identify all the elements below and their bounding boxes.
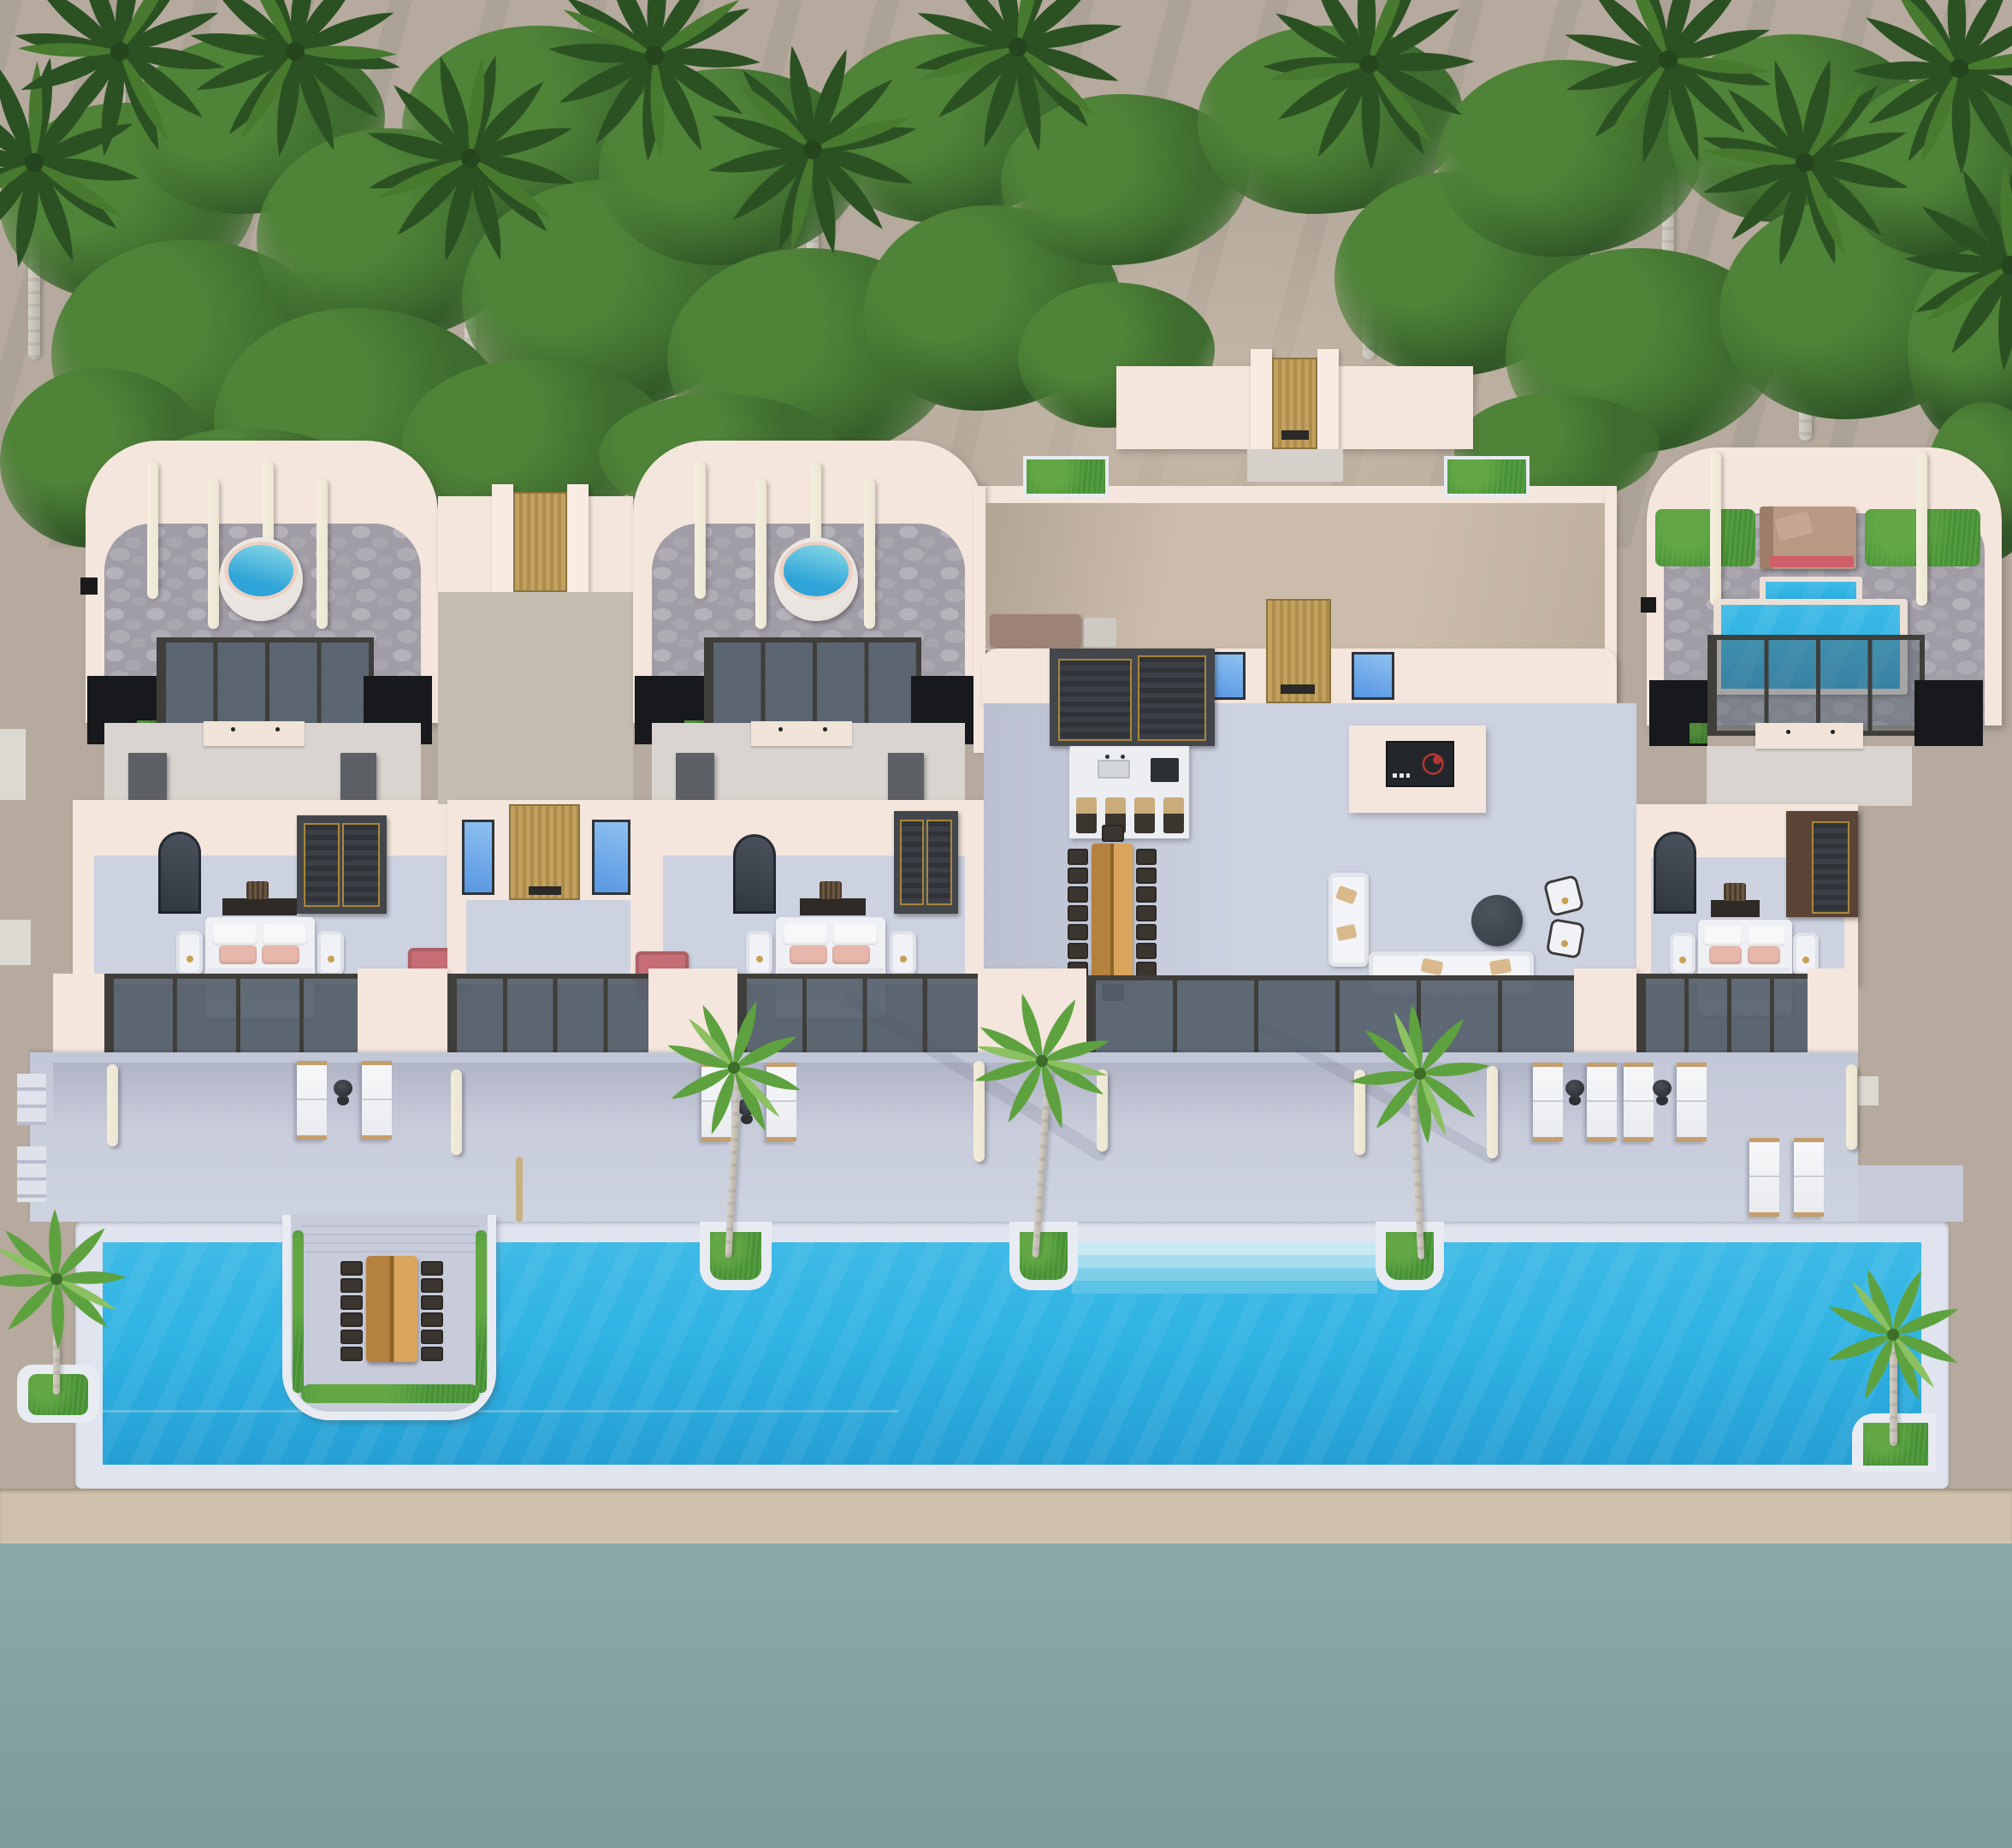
entryAB-corridor-floor <box>466 900 630 977</box>
suiteC-arched-door <box>1654 832 1696 914</box>
sun-deck-right-extension <box>1858 1165 1963 1222</box>
suiteC-bathroom-floor <box>1707 746 1912 806</box>
dining-chair <box>1136 924 1157 940</box>
palm-icon <box>1839 0 2012 188</box>
entryAB-skylight <box>592 820 630 895</box>
dining-chair <box>1136 886 1157 903</box>
alcove-chair <box>421 1312 443 1327</box>
gate-landing <box>1247 449 1343 482</box>
wardrobe-door <box>926 820 952 905</box>
suiteC-roof-grass <box>1655 509 1755 566</box>
door-mat <box>1281 684 1315 694</box>
facade-pier <box>1574 968 1636 1063</box>
patio-column <box>695 462 706 599</box>
dining-chair <box>1136 868 1157 884</box>
suiteA-vanity-counter <box>204 721 305 746</box>
suiteB-arched-door <box>733 834 776 914</box>
sun-lounger <box>1794 1138 1824 1217</box>
alcove-chair <box>421 1278 443 1293</box>
faucet <box>823 727 827 731</box>
palm-icon <box>0 1206 129 1352</box>
suiteA-armchair <box>317 931 344 975</box>
gateAB-wall <box>438 496 494 592</box>
door-latch <box>80 577 98 595</box>
gate-threshold <box>1281 430 1309 440</box>
pool-lap-line <box>103 1410 898 1413</box>
alcove-grass-fringe <box>301 1384 479 1403</box>
alcove-chair <box>421 1295 443 1310</box>
round-ottoman <box>1471 895 1523 946</box>
palm-icon <box>1240 0 1497 192</box>
suiteA-closet <box>128 753 167 803</box>
console-chair <box>1724 883 1746 901</box>
door-latch <box>1641 597 1656 613</box>
suiteC-console <box>1711 900 1760 917</box>
gate-top-wall <box>1116 366 1251 449</box>
pillow <box>212 923 257 945</box>
alcove-chair <box>421 1347 443 1361</box>
palm-icon <box>1908 163 2012 368</box>
suiteC-glass-doors <box>1707 635 1925 736</box>
wall-grass-planter <box>1027 459 1105 494</box>
palm-icon <box>1808 1249 1979 1420</box>
daybed-red-throw <box>1770 556 1854 567</box>
alcove-chair <box>340 1312 363 1327</box>
door-mat <box>529 886 561 895</box>
faucet <box>1786 730 1790 734</box>
entry-skylight <box>1352 652 1394 700</box>
suiteC-vanity-counter <box>1755 723 1863 749</box>
bar-stool <box>1134 797 1155 833</box>
suiteB-armchair <box>746 931 772 975</box>
patio-column <box>1710 452 1721 606</box>
alcove-chair <box>340 1278 363 1293</box>
patio-column <box>317 479 328 629</box>
right-steps <box>1858 1076 1879 1105</box>
sofa-vertical <box>1329 873 1369 967</box>
sun-lounger <box>1587 1063 1617 1141</box>
throw-pillow <box>1335 885 1358 905</box>
facade-pier <box>358 968 447 1063</box>
pink-pillow <box>219 945 257 964</box>
sun-lounger <box>1624 1063 1654 1141</box>
console-chair <box>246 881 269 899</box>
dining-table <box>1092 844 1133 982</box>
bar-stool <box>1163 797 1184 833</box>
throw-pillow <box>1489 958 1512 975</box>
wardrobe-door <box>304 823 340 907</box>
alcove-chair <box>421 1261 443 1276</box>
faucet <box>231 727 235 731</box>
pink-pillow <box>262 945 299 964</box>
sun-lounger <box>1677 1063 1707 1141</box>
bar-stool <box>1076 797 1097 833</box>
suiteA-console <box>222 898 297 915</box>
alcove-chair <box>340 1330 363 1344</box>
sun-lounger <box>1533 1063 1563 1141</box>
alcove-dining-table <box>366 1256 417 1362</box>
faucet <box>1121 755 1125 759</box>
dining-chair <box>1068 924 1088 940</box>
suiteC-dark-floor-right <box>1914 680 1983 746</box>
faucet <box>1105 755 1110 759</box>
wine-cellar-door <box>1138 655 1206 741</box>
deck-steps <box>17 1146 46 1202</box>
tv-screen <box>1386 741 1454 787</box>
patio-column <box>208 479 219 629</box>
cooktop <box>1151 758 1179 782</box>
island-sink <box>1098 760 1130 779</box>
gateAB-pillar <box>492 484 513 594</box>
side-table <box>334 1080 352 1097</box>
suiteB-armchair <box>890 931 916 975</box>
gate-pillar <box>1317 349 1339 452</box>
palm-icon <box>1347 1001 1493 1146</box>
alcove-grass-fringe <box>293 1230 304 1393</box>
outdoor-bench-marble <box>1084 618 1116 647</box>
throw-pillow <box>1421 958 1444 976</box>
deck-bollard <box>107 1064 118 1146</box>
alcove-chair <box>340 1347 363 1361</box>
facade-wall <box>1808 968 1858 1063</box>
pillow <box>1747 926 1786 946</box>
wardrobe-door <box>900 820 924 905</box>
ocean-water <box>0 1543 2012 1848</box>
daybed-cushion <box>1774 512 1813 542</box>
gate-pillar <box>1251 349 1272 452</box>
pillow <box>262 923 307 945</box>
alcove-chair <box>340 1295 363 1310</box>
patio-column <box>755 479 766 629</box>
dining-chair <box>1068 905 1088 921</box>
accent-chair <box>1546 918 1586 959</box>
pink-pillow <box>790 945 827 964</box>
suiteB-closet <box>888 753 924 803</box>
left-pad <box>0 729 26 800</box>
palm-icon <box>661 995 807 1140</box>
suiteB-courtyard-glass-wall <box>704 637 921 733</box>
deck-steps <box>17 1074 46 1125</box>
pillow <box>783 923 828 945</box>
palm-icon <box>965 984 1119 1138</box>
villa-aerial-render <box>0 0 2012 1848</box>
patio-column <box>864 479 875 629</box>
side-table <box>1653 1080 1672 1097</box>
faucet <box>275 727 280 731</box>
suiteB-console <box>800 898 866 915</box>
faucet <box>778 727 783 731</box>
suiteA-jacuzzi-water <box>228 545 293 596</box>
wine-cellar-door <box>1058 659 1132 741</box>
alcove-grass-fringe <box>476 1230 487 1393</box>
indoor-planting <box>1689 723 1707 743</box>
suiteB-vanity-counter <box>751 721 852 746</box>
dining-chair <box>1136 849 1157 865</box>
pink-pillow <box>1748 946 1780 964</box>
palm-icon <box>898 0 1138 167</box>
throw-pillow <box>1336 924 1358 941</box>
suiteA-arched-door <box>158 832 201 914</box>
suiteA-closet <box>340 753 376 803</box>
planter-grass <box>1386 1232 1434 1280</box>
dining-chair <box>1136 943 1157 959</box>
pool-steps <box>1072 1242 1377 1294</box>
dining-head-chair <box>1102 825 1124 842</box>
suiteB-jacuzzi-water <box>784 545 849 596</box>
dining-chair <box>1068 868 1088 884</box>
patio-column <box>147 462 158 599</box>
outdoor-shower-pole <box>516 1157 523 1222</box>
pink-pillow <box>1709 946 1742 964</box>
gateAB-pillar <box>567 484 589 594</box>
alcove-chair <box>340 1261 363 1276</box>
deck-bollard <box>1846 1064 1857 1150</box>
alcove-chair <box>421 1330 443 1344</box>
gateAB-wood-door <box>513 492 567 592</box>
alcove-steps <box>301 1218 479 1253</box>
sun-lounger <box>297 1061 327 1140</box>
deck-bollard <box>451 1069 462 1155</box>
outdoor-bench-mauve <box>990 614 1080 647</box>
gate-top-wall <box>1339 366 1473 449</box>
suiteA-courtyard-glass-wall <box>157 637 374 733</box>
gateAB-wall <box>589 496 633 592</box>
console-chair <box>820 881 842 899</box>
left-pad <box>0 920 31 965</box>
garden-path <box>438 592 633 804</box>
faucet <box>1831 730 1835 734</box>
wall-grass-planter <box>1447 459 1526 494</box>
wardrobe-door <box>342 823 380 907</box>
sun-lounger <box>1749 1138 1779 1217</box>
sun-lounger <box>362 1061 392 1140</box>
facade-wall <box>53 974 104 1063</box>
entryAB-skylight <box>462 820 494 895</box>
pillow <box>832 923 878 945</box>
side-table <box>1565 1080 1584 1097</box>
suiteC-armchair <box>1670 933 1695 975</box>
dining-chair <box>1136 905 1157 921</box>
dining-chair <box>1068 849 1088 865</box>
dining-chair <box>1068 943 1088 959</box>
suiteC-wardrobe-door <box>1812 821 1849 914</box>
patio-column <box>1916 452 1927 606</box>
pink-pillow <box>832 945 870 964</box>
suiteC-daybed <box>1760 506 1856 569</box>
suiteB-closet <box>676 753 714 803</box>
planter-grass <box>1020 1232 1068 1280</box>
beach-sand <box>0 1489 2012 1543</box>
suiteA-armchair <box>176 931 203 975</box>
pillow <box>1703 926 1743 946</box>
dining-chair <box>1068 886 1088 903</box>
planter-grass <box>710 1232 761 1280</box>
